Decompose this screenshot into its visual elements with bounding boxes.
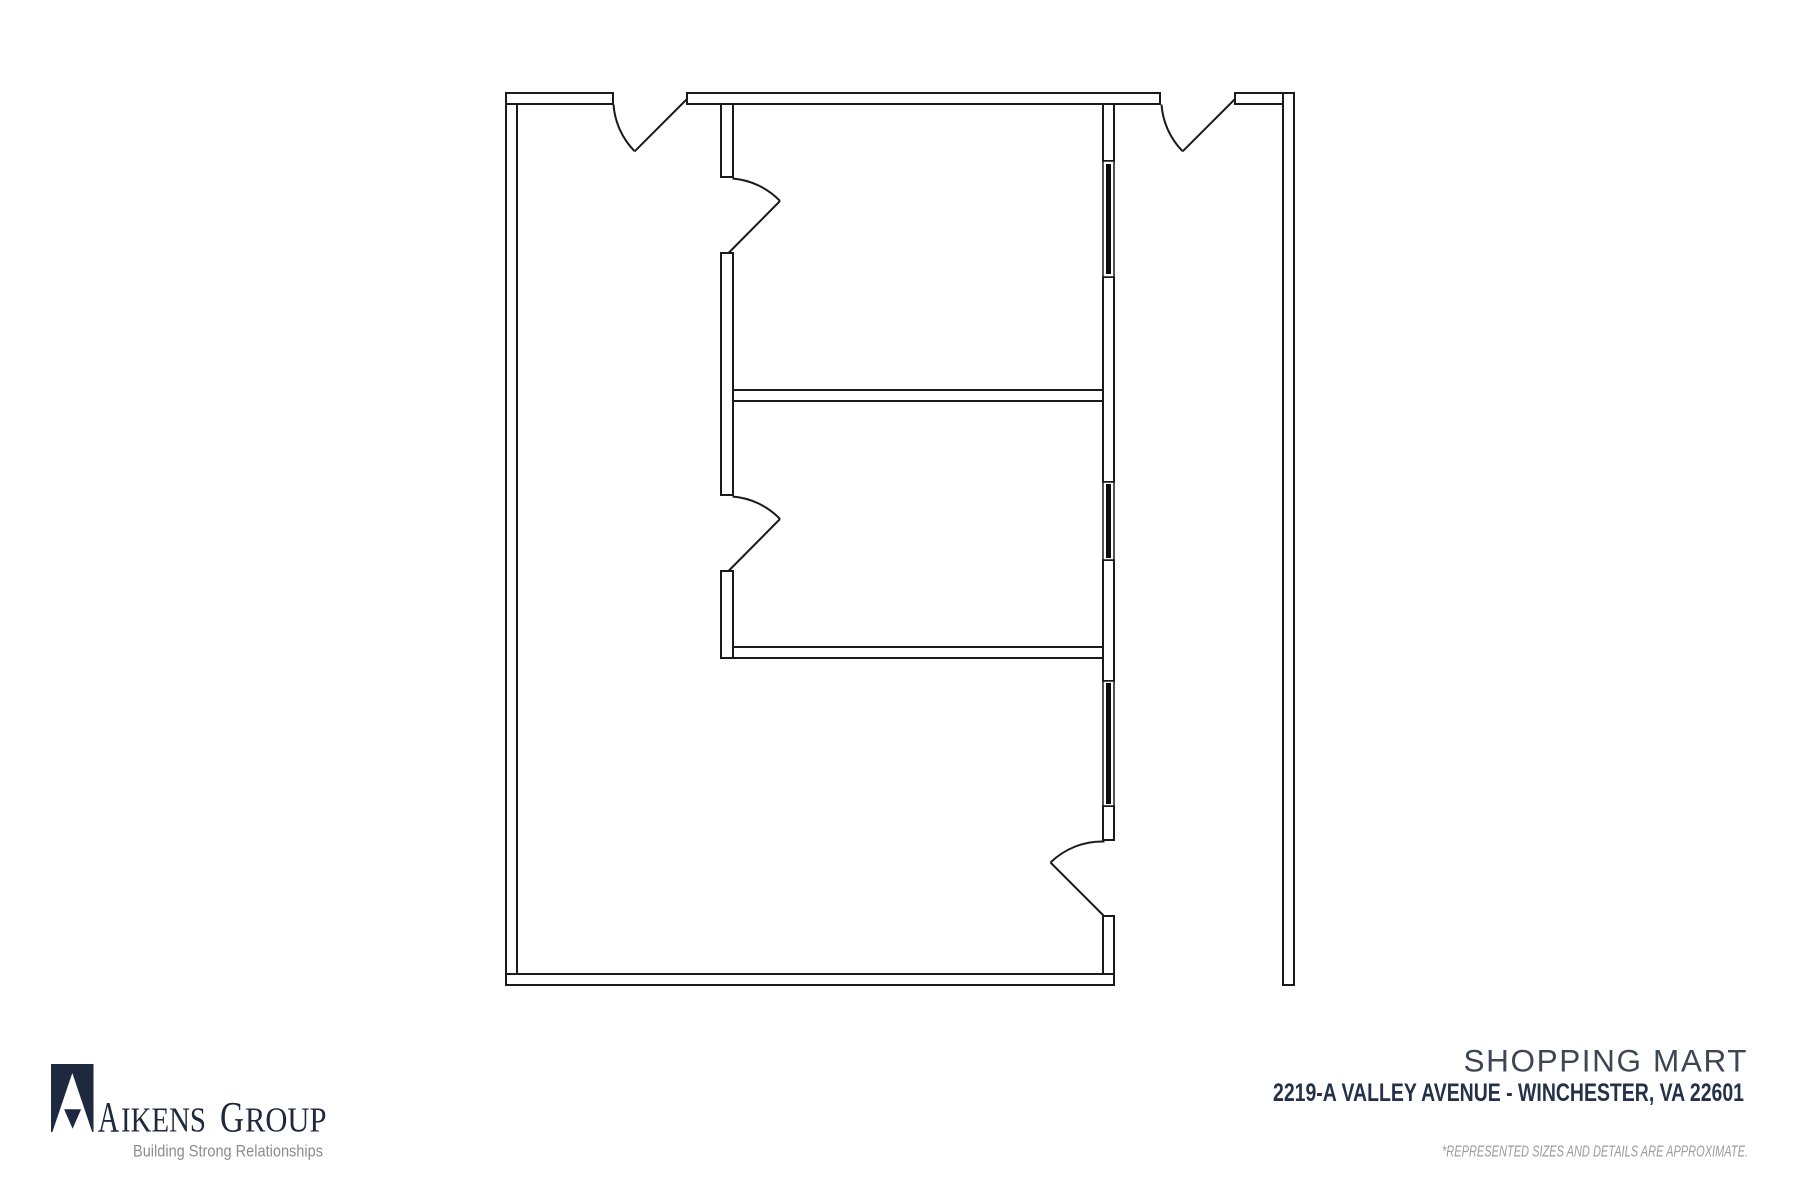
svg-text:2219-A VALLEY AVENUE - WINCHES: 2219-A VALLEY AVENUE - WINCHESTER, VA 22… (1273, 1079, 1744, 1107)
svg-text:Building Strong Relationships: Building Strong Relationships (133, 1142, 323, 1161)
svg-text:G: G (220, 1095, 244, 1142)
svg-text:SHOPPING MART: SHOPPING MART (1464, 1043, 1747, 1079)
svg-text:*REPRESENTED SIZES AND DETAILS: *REPRESENTED SIZES AND DETAILS ARE APPRO… (1442, 1144, 1748, 1161)
svg-text:A: A (98, 1095, 119, 1142)
svg-text:ROUP: ROUP (245, 1101, 327, 1140)
svg-text:IKENS: IKENS (121, 1101, 206, 1140)
